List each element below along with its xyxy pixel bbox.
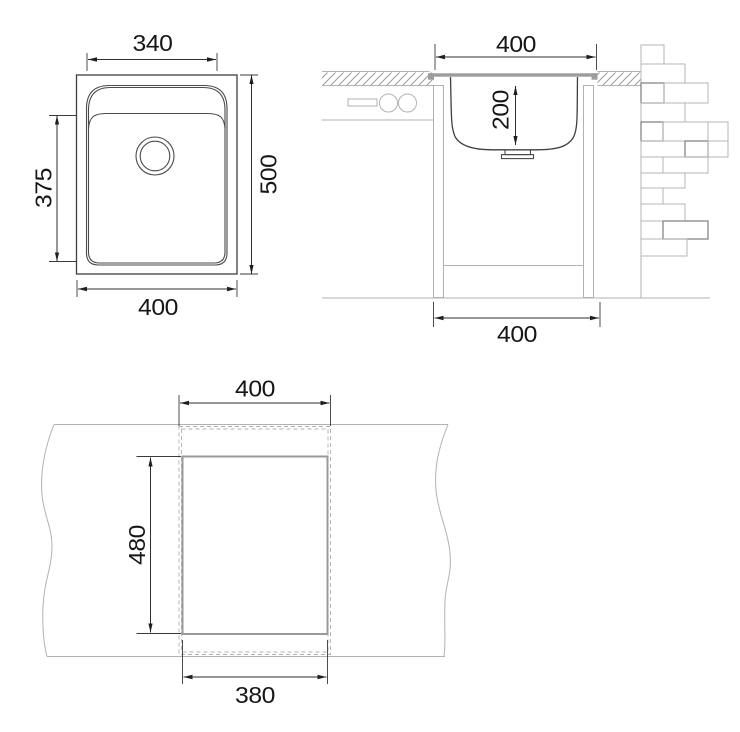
sink-rim-section xyxy=(428,73,598,76)
dim-label-cutout-bottom: 380 xyxy=(235,682,275,708)
counter-hatch-left xyxy=(322,73,433,86)
dim-label-plan-bottom: 400 xyxy=(138,294,178,320)
technical-drawing-canvas: 340 375 500 400 xyxy=(0,0,740,732)
dim-label-plan-left: 375 xyxy=(31,168,57,208)
dim-label-plan-top: 340 xyxy=(133,30,173,56)
dim-label-plan-right: 500 xyxy=(256,155,282,195)
rim-endcap-right xyxy=(592,73,598,79)
dim-label-section-top: 400 xyxy=(496,31,536,57)
rim-endcap-left xyxy=(428,73,434,79)
dim-label-cutout-top: 400 xyxy=(235,376,275,402)
dim-label-section-depth: 200 xyxy=(488,90,514,130)
counter-hatch-right xyxy=(598,73,642,86)
dim-label-section-bottom: 400 xyxy=(497,321,537,347)
sink-drawing: 340 375 500 400 xyxy=(0,0,740,732)
background xyxy=(0,0,740,732)
dim-label-cutout-side: 480 xyxy=(124,525,150,565)
